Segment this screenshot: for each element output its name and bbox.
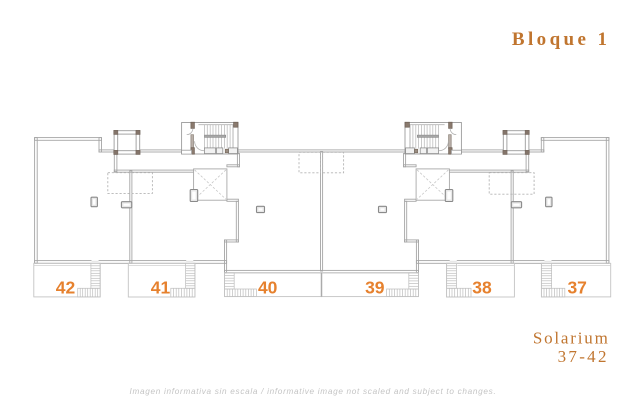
svg-text:39: 39 xyxy=(365,278,385,298)
svg-text:Imagen informativa sin escala: Imagen informativa sin escala / informat… xyxy=(130,387,497,396)
svg-text:37: 37 xyxy=(567,278,586,298)
svg-text:38: 38 xyxy=(472,278,492,298)
svg-text:42: 42 xyxy=(56,278,76,298)
svg-text:37-42: 37-42 xyxy=(558,347,609,366)
svg-text:Bloque 1: Bloque 1 xyxy=(512,29,610,50)
svg-text:41: 41 xyxy=(151,278,171,298)
svg-text:40: 40 xyxy=(258,278,278,298)
svg-text:Solarium: Solarium xyxy=(533,328,610,347)
